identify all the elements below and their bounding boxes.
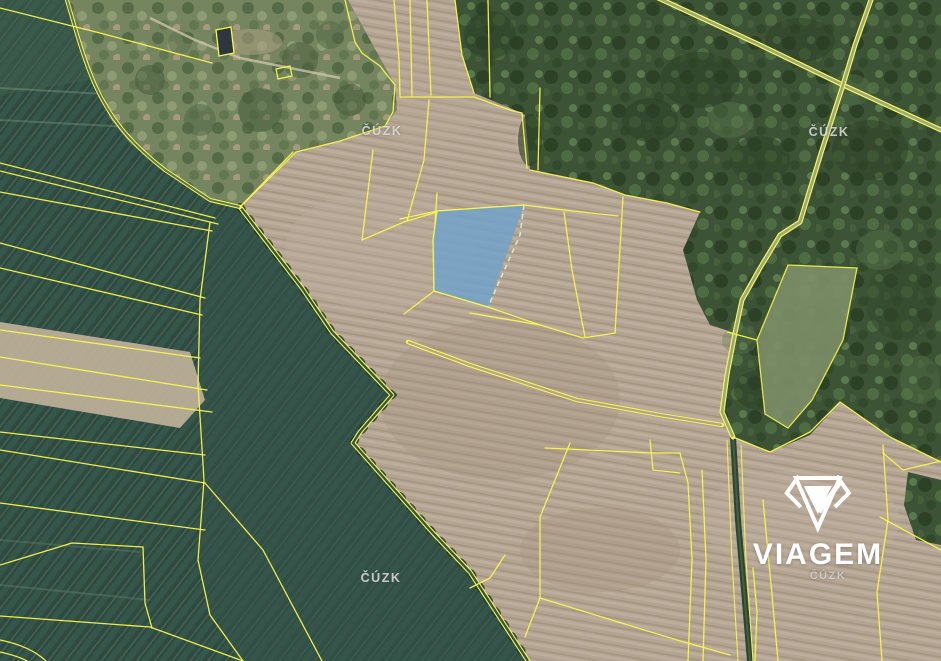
viagem-logo-text: VIAGEM: [753, 540, 883, 570]
building-footprint: [216, 27, 234, 56]
cuzk-watermark-bottom-right: ČÚZK: [810, 570, 847, 582]
cuzk-watermark-top-right: ČÚZK: [809, 125, 850, 139]
cuzk-watermark-bottom-left: ČÚZK: [361, 571, 402, 585]
cuzk-watermark-top-left: ČÚZK: [362, 124, 403, 138]
viagem-logo: VIAGEM: [753, 470, 883, 570]
aerial-map-viewport[interactable]: ČÚZK ČÚZK ČÚZK ČÚZK VIAGEM: [0, 0, 941, 661]
viagem-gem-icon: [779, 470, 857, 536]
